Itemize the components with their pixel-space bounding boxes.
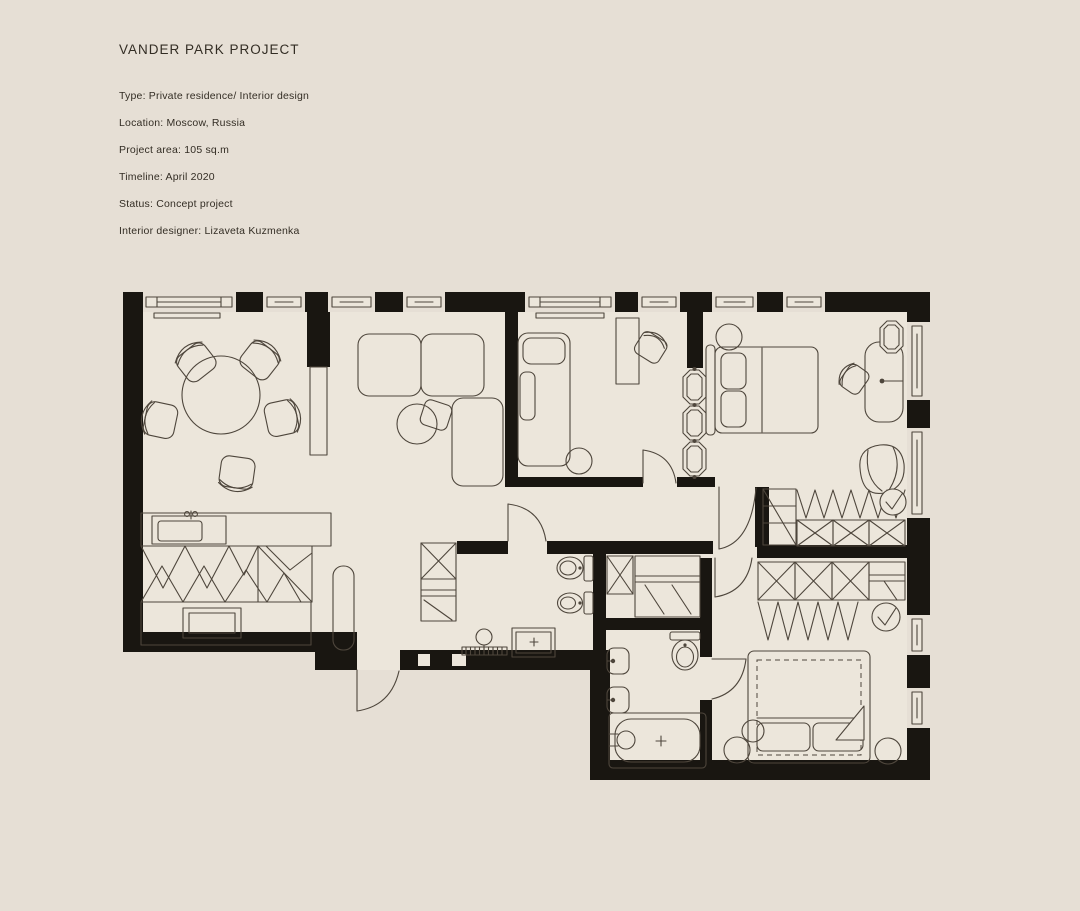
window-icon — [529, 297, 611, 307]
laundry-basket — [880, 489, 906, 515]
window-icon — [642, 297, 676, 307]
window-icon — [146, 297, 232, 307]
window-icon — [912, 326, 922, 396]
window-icon — [912, 432, 922, 514]
column — [310, 367, 327, 455]
floor-plan-drawing — [0, 0, 1080, 911]
window-icon — [787, 297, 821, 307]
laundry-basket — [872, 603, 900, 631]
window-icon — [332, 297, 371, 307]
window-icon — [716, 297, 753, 307]
window-icon — [912, 692, 922, 724]
apartment-floor — [143, 312, 907, 760]
window-icon — [912, 619, 922, 651]
entrance-door — [357, 670, 399, 711]
floor-plan-sheet: VANDER PARK PROJECT Type: Private reside… — [0, 0, 1080, 911]
hex-shelf-stack — [683, 367, 706, 479]
window-icon — [267, 297, 301, 307]
window-icon — [407, 297, 441, 307]
hex-pouf — [880, 321, 903, 353]
